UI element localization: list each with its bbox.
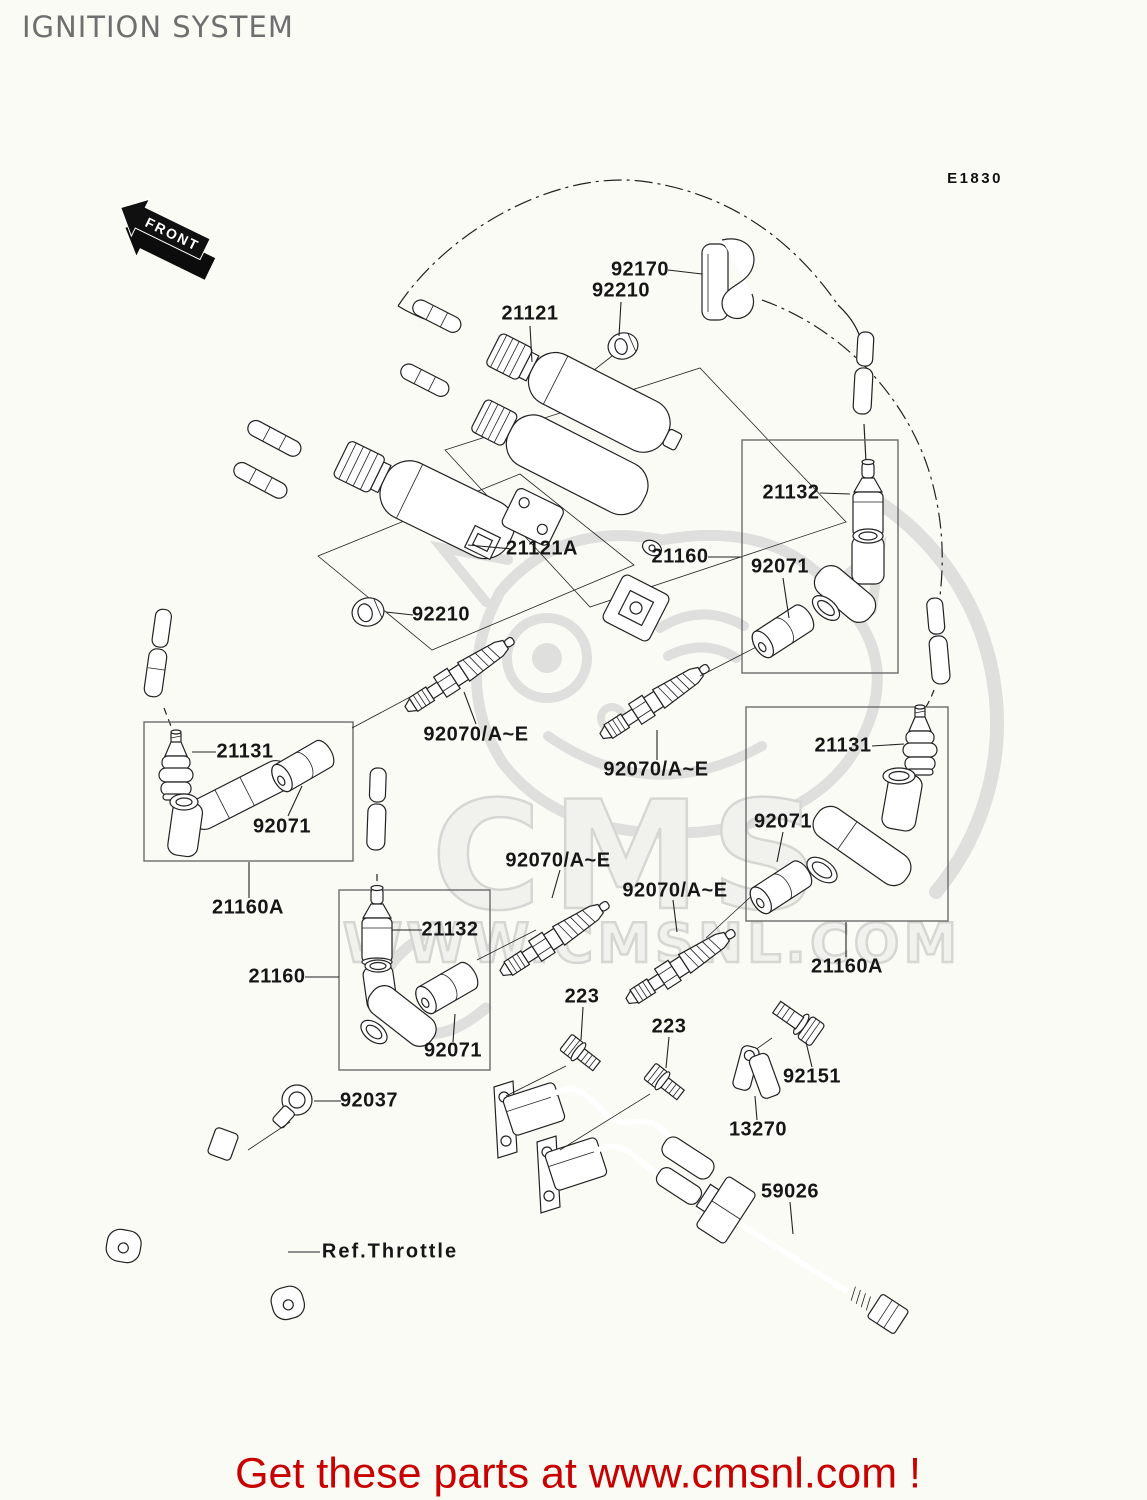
label-92210-left: 92210 [412,604,470,627]
clamp-13270 [732,1044,782,1100]
label-21121a: 21121A [506,538,578,561]
label-21160-mid: 21160 [248,966,305,989]
coil-clamp-92170 [702,239,754,320]
bolt-223-2 [643,1062,687,1103]
label-92071-right-top: 92071 [751,556,809,579]
label-92071-left: 92071 [253,816,311,839]
label-92210-top: 92210 [592,280,650,303]
label-21160-right: 21160 [651,546,708,569]
diagram-code: E1830 [947,170,1003,187]
nut-92210-left [349,594,387,629]
label-92070-1: 92070/A~E [423,724,528,747]
inline-connector-mid [367,768,388,851]
inline-connector-left [143,608,173,698]
plug-cap-21131-left [159,730,193,800]
label-92071-mid: 92071 [424,1040,482,1063]
harness-assembly [494,996,909,1334]
label-21132-mid: 21132 [421,919,478,942]
label-92070-2: 92070/A~E [603,759,708,782]
label-21160a-right: 21160A [811,956,883,979]
elbow-cap-right-top [808,529,884,628]
label-223-2: 223 [652,1016,687,1039]
plug-cap-21132-mid [362,886,392,967]
resistor-92071-right-top [748,601,818,661]
label-92070-3: 92070/A~E [505,850,610,873]
resistor-92071-left [268,737,338,795]
label-92037: 92037 [340,1090,398,1113]
label-59026: 59026 [761,1181,819,1204]
label-21131-right: 21131 [814,735,871,758]
front-arrow: FRONT [105,190,226,287]
spark-plug-1 [400,630,520,719]
clamp-92037 [272,1085,312,1129]
throttle-bracket [104,1085,312,1322]
plug-cap-21132-right [853,460,883,541]
label-223-1: 223 [565,986,600,1009]
page-title: IGNITION SYSTEM [22,10,294,44]
ignition-coil-21121 [398,297,691,643]
label-21132-right: 21132 [762,482,819,505]
ignition-diagram-canvas: CMS WWW.CMSNL.COM [0,0,1147,1500]
plug-cap-21131-right [903,705,937,775]
inline-connector-right [925,597,950,684]
spark-plug-2 [595,657,715,746]
label-92071-right-mid: 92071 [754,811,812,834]
label-92070-4: 92070/A~E [622,880,727,903]
label-21131-left: 21131 [216,741,273,764]
label-21121: 21121 [501,303,558,326]
parts-diagram-page: CMS WWW.CMSNL.COM [0,0,1147,1500]
label-ref-throttle: Ref.Throttle [322,1241,458,1264]
footer-promo-text: Get these parts at www.cmsnl.com ! [235,1450,921,1499]
label-13270: 13270 [729,1119,787,1142]
label-92151: 92151 [783,1066,841,1089]
label-21160a-left: 21160A [212,897,284,920]
label-92170: 92170 [611,259,669,282]
inline-connector-right-top [853,332,875,415]
bolt-92151 [769,996,825,1046]
